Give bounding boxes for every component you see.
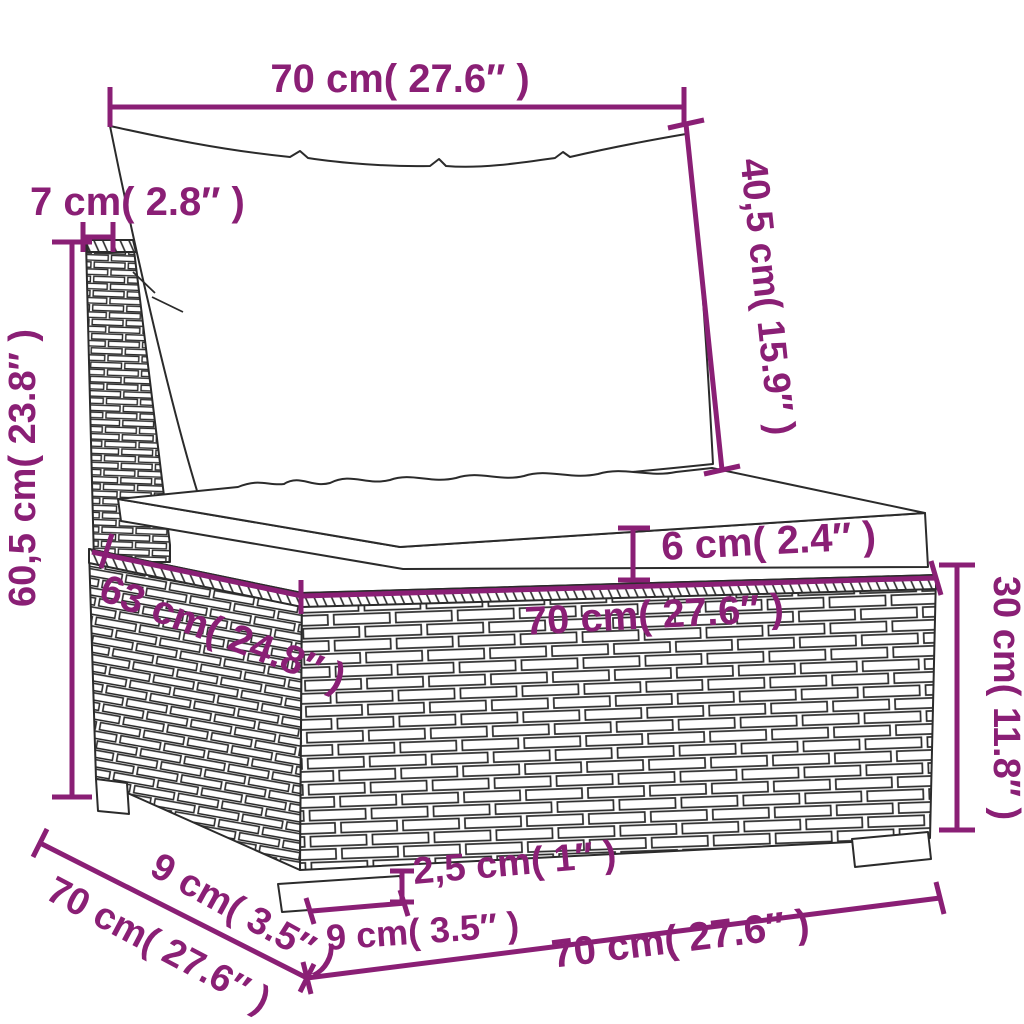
diagram-canvas: 70 cm( 27.6″ ) 7 cm( 2.8″ ) 60,5 cm( 23.… — [0, 0, 1024, 1024]
dim-label-back-total-height: 60,5 cm( 23.8″ ) — [2, 329, 44, 607]
dim-line-back-total-height — [52, 242, 92, 797]
dim-line-base-height — [939, 565, 975, 830]
dim-label-back-cushion-width: 70 cm( 27.6″ ) — [270, 57, 529, 101]
dim-label-back-post-width: 7 cm( 2.8″ ) — [30, 180, 245, 224]
sofa-dimension-diagram: 70 cm( 27.6″ ) 7 cm( 2.8″ ) 60,5 cm( 23.… — [0, 0, 1024, 1024]
dim-label-base-width: 70 cm( 27.6″ ) — [549, 901, 812, 976]
dim-label-back-cushion-height: 40,5 cm( 15.9″ ) — [732, 156, 803, 437]
leg-front-right — [852, 832, 931, 867]
dim-label-base-height: 30 cm( 11.8″ ) — [985, 576, 1024, 820]
leg-back-left — [96, 779, 129, 814]
dim-label-leg-width: 9 cm( 3.5″ ) — [325, 904, 521, 958]
